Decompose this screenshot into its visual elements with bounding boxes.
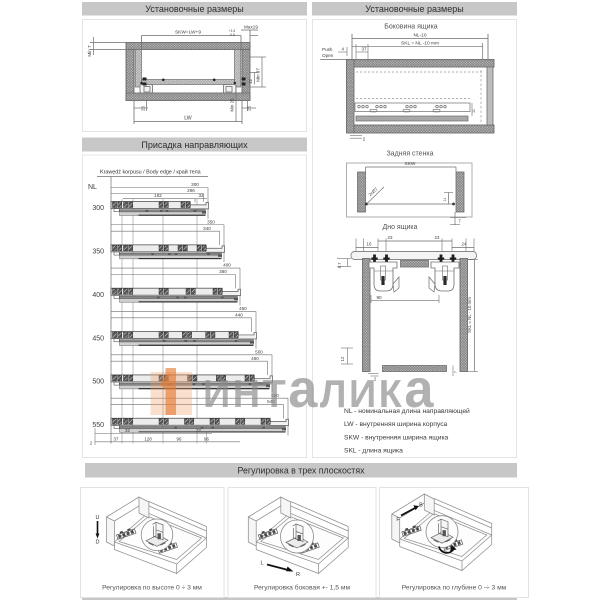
svg-text:L: L xyxy=(260,561,263,567)
svg-text:23: 23 xyxy=(388,235,393,240)
svg-text:4: 4 xyxy=(341,47,344,52)
svg-text:NL: NL xyxy=(88,184,97,191)
svg-text:32: 32 xyxy=(198,193,204,198)
svg-text:296: 296 xyxy=(187,188,195,193)
svg-text:B: B xyxy=(419,503,423,509)
svg-text:-0.5: -0.5 xyxy=(229,33,235,37)
svg-text:96: 96 xyxy=(204,437,209,442)
svg-text:96: 96 xyxy=(177,437,182,442)
svg-text:Задняя стенка: Задняя стенка xyxy=(386,151,433,158)
svg-text:23: 23 xyxy=(435,235,440,240)
svg-text:16: 16 xyxy=(367,242,372,247)
svg-text:7: 7 xyxy=(458,219,461,224)
svg-text:LW - внутренняя ширина корпуса: LW - внутренняя ширина корпуса xyxy=(344,421,448,428)
svg-text:SKW - внутренняя ширина ящика: SKW - внутренняя ширина ящика xyxy=(344,434,449,441)
svg-text:D: D xyxy=(96,540,100,546)
svg-text:Регулировка по высоте 0 ÷ 3 мм: Регулировка по высоте 0 ÷ 3 мм xyxy=(102,585,202,592)
svg-text:450: 450 xyxy=(92,335,104,342)
svg-text:500: 500 xyxy=(92,379,104,386)
svg-text:Регулировка в трех плоскостях: Регулировка в трех плоскостях xyxy=(238,466,366,476)
svg-text:Min 25: Min 25 xyxy=(230,98,235,112)
svg-text:128: 128 xyxy=(144,437,152,442)
svg-text:490: 490 xyxy=(251,356,259,361)
svg-text:37: 37 xyxy=(362,47,367,52)
svg-text:SKW: SKW xyxy=(405,161,416,167)
svg-text:SKL = NL - 10 mm: SKL = NL - 10 mm xyxy=(467,297,472,333)
svg-text:550: 550 xyxy=(92,422,104,429)
svg-text:Регулировка по глубине 0 -÷ 3: Регулировка по глубине 0 -÷ 3 мм xyxy=(402,584,507,592)
svg-text:300: 300 xyxy=(92,205,104,212)
svg-text:400: 400 xyxy=(223,263,231,268)
svg-text:32: 32 xyxy=(196,428,201,433)
svg-text:300: 300 xyxy=(191,182,199,187)
svg-text:Установочные размеры: Установочные размеры xyxy=(365,4,463,14)
svg-text:11: 11 xyxy=(443,198,447,202)
svg-text:37: 37 xyxy=(114,437,119,442)
svg-text:SKL = NL -10 mm: SKL = NL -10 mm xyxy=(401,40,439,46)
svg-text:440: 440 xyxy=(235,312,243,317)
svg-text:2: 2 xyxy=(363,137,366,142)
svg-text:90: 90 xyxy=(376,295,382,300)
svg-text:400: 400 xyxy=(92,292,104,299)
svg-text:Регулировка боковая +- 1,5 мм: Регулировка боковая +- 1,5 мм xyxy=(254,584,350,592)
svg-text:500: 500 xyxy=(255,349,263,354)
svg-text:340: 340 xyxy=(203,226,211,231)
svg-text:U: U xyxy=(96,515,100,521)
svg-text:25: 25 xyxy=(247,106,252,111)
svg-text:2: 2 xyxy=(90,441,93,446)
svg-text:R: R xyxy=(296,572,300,578)
svg-text:12: 12 xyxy=(340,356,345,361)
svg-text:Дно ящика: Дно ящика xyxy=(382,224,417,231)
svg-text:350: 350 xyxy=(207,219,215,224)
svg-text:11: 11 xyxy=(472,109,476,113)
svg-text:Krawędź korpusu / Body edge /: Krawędź korpusu / Body edge / край тела xyxy=(100,169,201,176)
svg-text:Min 7: Min 7 xyxy=(87,45,92,57)
svg-text:Open: Open xyxy=(322,53,334,58)
svg-text:25: 25 xyxy=(140,106,145,111)
svg-text:380: 380 xyxy=(219,269,227,274)
svg-text:7: 7 xyxy=(454,371,458,373)
svg-text:192: 192 xyxy=(154,193,162,198)
svg-text:32: 32 xyxy=(125,428,130,433)
svg-text:6.7: 6.7 xyxy=(337,262,342,268)
svg-text:NL-10: NL-10 xyxy=(413,33,426,39)
svg-text:450: 450 xyxy=(239,306,247,311)
svg-text:Присадка направляющих: Присадка направляющих xyxy=(141,140,248,150)
svg-text:Push: Push xyxy=(322,47,333,52)
svg-text:12: 12 xyxy=(248,79,253,84)
svg-text:350: 350 xyxy=(92,249,104,256)
svg-text:Max19: Max19 xyxy=(244,25,258,30)
svg-text:SKW=LW+9: SKW=LW+9 xyxy=(175,30,201,36)
svg-text:24: 24 xyxy=(462,242,467,247)
svg-text:Min 37: Min 37 xyxy=(256,68,261,82)
svg-text:Боковина ящика: Боковина ящика xyxy=(384,24,438,31)
svg-text:SKL - длина ящика: SKL - длина ящика xyxy=(344,448,403,455)
svg-text:Установочные размеры: Установочные размеры xyxy=(145,4,243,14)
svg-text:LW: LW xyxy=(184,116,191,122)
